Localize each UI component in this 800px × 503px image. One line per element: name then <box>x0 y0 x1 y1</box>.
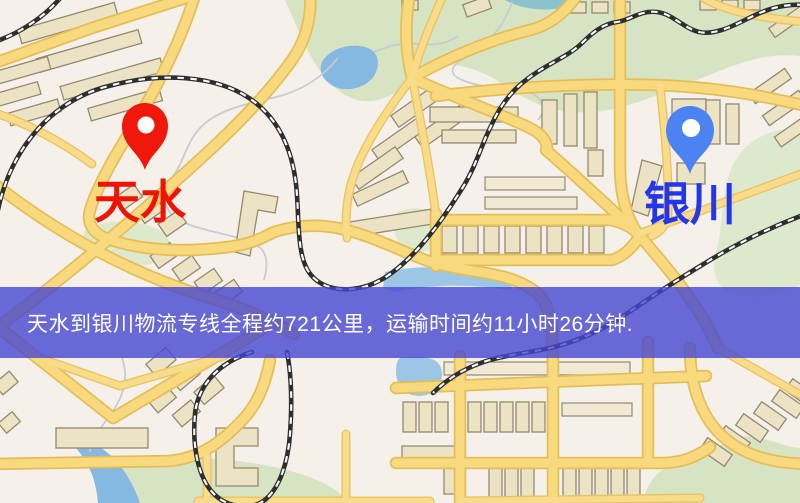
map-canvas: 天水 银川 <box>0 0 800 503</box>
destination-label: 银川 <box>644 178 736 230</box>
route-info-banner: 天水到银川物流专线全程约721公里，运输时间约11小时26分钟. <box>0 287 800 358</box>
logistics-route-map: 天水 银川 天水到银川物流专线全程约721公里，运输时间约11小时26分钟. <box>0 0 800 503</box>
route-info-text: 天水到银川物流专线全程约721公里，运输时间约11小时26分钟. <box>27 308 633 338</box>
destination-pin-hole <box>682 119 700 137</box>
origin-pin-hole <box>138 117 155 134</box>
origin-label: 天水 <box>94 176 187 228</box>
